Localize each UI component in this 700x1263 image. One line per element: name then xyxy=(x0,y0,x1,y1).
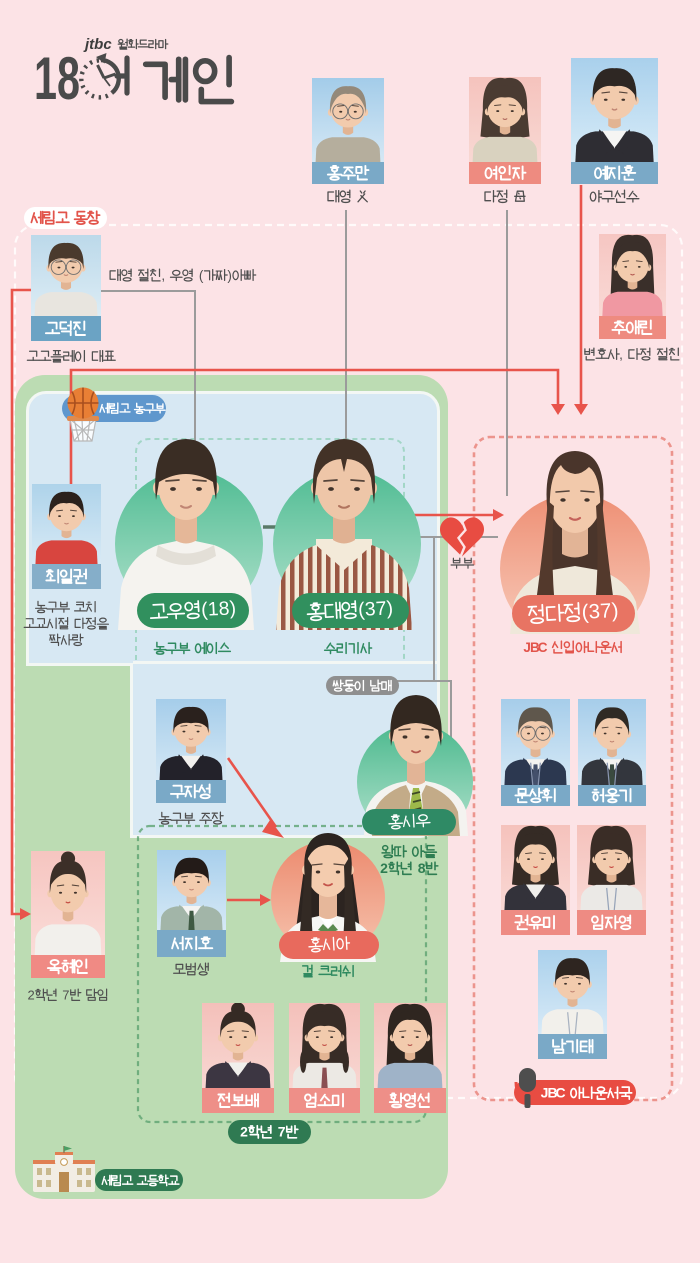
svg-text:C: C xyxy=(538,640,548,655)
svg-text:jtbc: jtbc xyxy=(83,36,112,53)
svg-text:): ) xyxy=(227,268,232,283)
svg-text:,: , xyxy=(619,347,623,362)
svg-text:,: , xyxy=(161,268,165,283)
svg-text:): ) xyxy=(386,597,394,619)
svg-text:7: 7 xyxy=(278,1124,286,1140)
svg-text:18: 18 xyxy=(34,45,80,112)
svg-text:8: 8 xyxy=(218,598,230,621)
svg-text:): ) xyxy=(611,599,619,622)
svg-text:C: C xyxy=(556,1085,566,1101)
svg-text:8: 8 xyxy=(418,860,426,876)
svg-text:2: 2 xyxy=(240,1124,248,1140)
svg-text:): ) xyxy=(229,597,237,619)
svg-text:2: 2 xyxy=(27,987,34,1002)
svg-text:2: 2 xyxy=(380,860,388,876)
svg-text:7: 7 xyxy=(599,599,612,623)
svg-text:7: 7 xyxy=(375,598,387,621)
svg-text:7: 7 xyxy=(62,987,69,1002)
svg-text:(: ( xyxy=(199,268,204,283)
